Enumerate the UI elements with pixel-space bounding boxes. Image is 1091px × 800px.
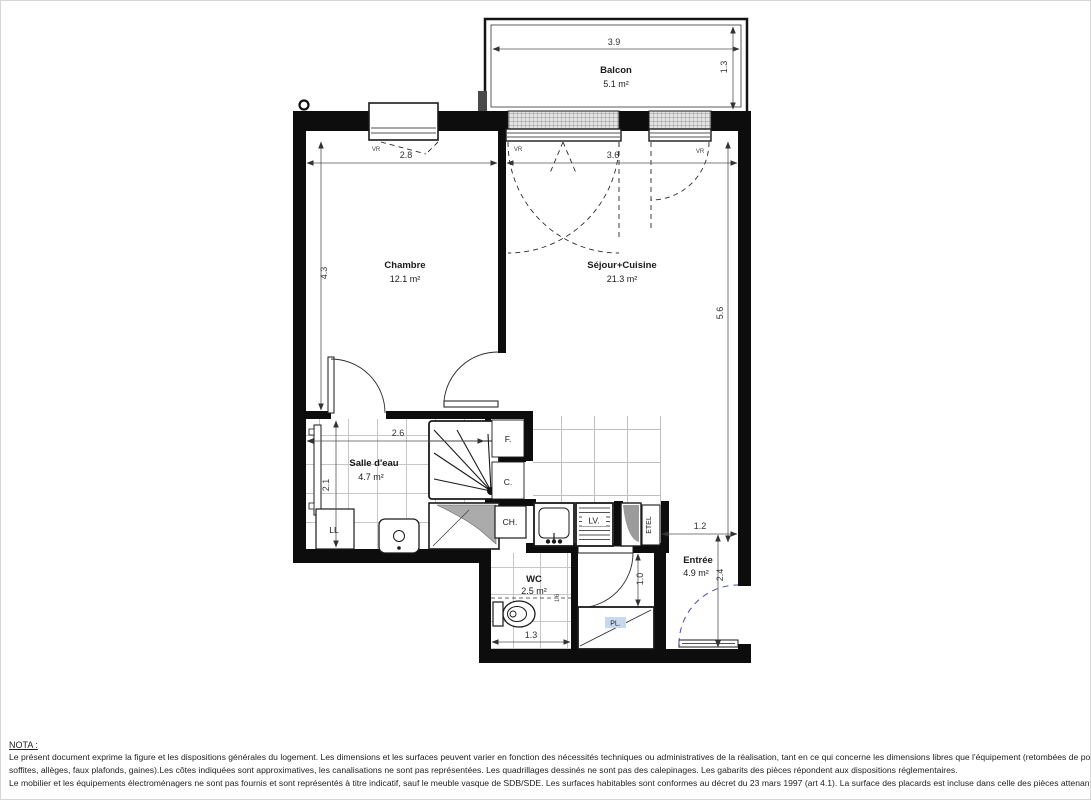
living-door-swing [444,352,498,401]
bedroom-window [369,103,438,140]
wc-area: 2.5 m² [521,586,547,596]
fridge-label: F. [505,434,512,444]
nota-block: NOTA : Le présent document exprime la fi… [9,740,1085,790]
bedroom-door-leaf [328,357,334,413]
entry-name: Entrée [683,555,713,566]
dim-bedroom-width: 2.8 [400,150,413,160]
nota-line-1: Le présent document exprime la figure et… [9,751,1085,764]
living-door-leaf [444,401,498,407]
dishwasher-label: LV. [588,516,599,526]
dim-entry-height: 2.4 [715,569,725,582]
kitchen-tiles [533,416,661,504]
vr-label-living-right: VR [696,149,705,155]
rain-pipe [478,91,487,113]
french-window-b-swing [651,142,709,231]
wc-door-leaf [578,546,633,553]
dim-wc-height: 1.6 [555,593,561,602]
cooker-label: C. [504,477,513,487]
toilet-tank [493,602,503,626]
wc-door-swing [578,553,633,608]
french-window-a-sill [508,111,619,130]
dim-entry-width: 1.2 [694,521,707,531]
balcony-area: 5.1 m² [603,79,629,89]
dim-balcony-width: 3.9 [608,37,621,47]
nota-line-2: soffites, allèges, faux plafonds, gaines… [9,764,1085,777]
dim-living-width: 3.6 [607,150,620,160]
dim-hall-width: 1.0 [635,573,645,586]
dim-living-height: 5.6 [715,307,725,320]
nota-title: NOTA : [9,740,1085,750]
dim-wc-width: 1.3 [525,630,538,640]
dim-balcony-depth: 1.3 [719,61,729,74]
boiler-label: CH. [503,517,518,527]
french-window-b [649,129,711,141]
wc-name: WC [526,574,542,585]
entry-closet: PL. [578,607,654,649]
living-name: Séjour+Cuisine [587,260,656,271]
french-window-a-swing [508,142,619,253]
dim-bathroom-width: 2.6 [392,428,405,438]
dim-bedroom-height: 4.3 [319,267,329,280]
french-window-a [506,129,621,141]
vr-label-living-left: VR [514,147,523,153]
french-window-b-sill [649,111,711,130]
entry-area: 4.9 m² [683,568,709,578]
washing-machine-label: LL [329,525,339,535]
floor-plan-drawing: LL F. C. CH. LV. ETEL PL. [1,1,1091,739]
floor-plan-page: LL F. C. CH. LV. ETEL PL. [0,0,1091,800]
balcony-name: Balcon [600,65,632,76]
shutter-labels: VR VR VR [372,147,705,155]
nota-line-3: Le mobilier et les équipements électromé… [9,777,1085,790]
towel-radiator [314,425,321,515]
etel-label: ETEL [646,516,653,534]
dim-bathroom-height: 2.1 [321,479,331,492]
bathroom-name: Salle d'eau [349,458,398,469]
living-area: 21.3 m² [607,274,638,284]
bathroom-area: 4.7 m² [358,472,384,482]
bedroom-area: 12.1 m² [390,274,421,284]
entrance-door-swing [679,585,738,644]
bedroom-door-swing [331,359,385,413]
vr-label-bedroom: VR [372,147,381,153]
survey-point [300,101,309,110]
closet-label: PL. [610,621,621,628]
bedroom-name: Chambre [384,260,425,271]
windows [369,103,711,253]
